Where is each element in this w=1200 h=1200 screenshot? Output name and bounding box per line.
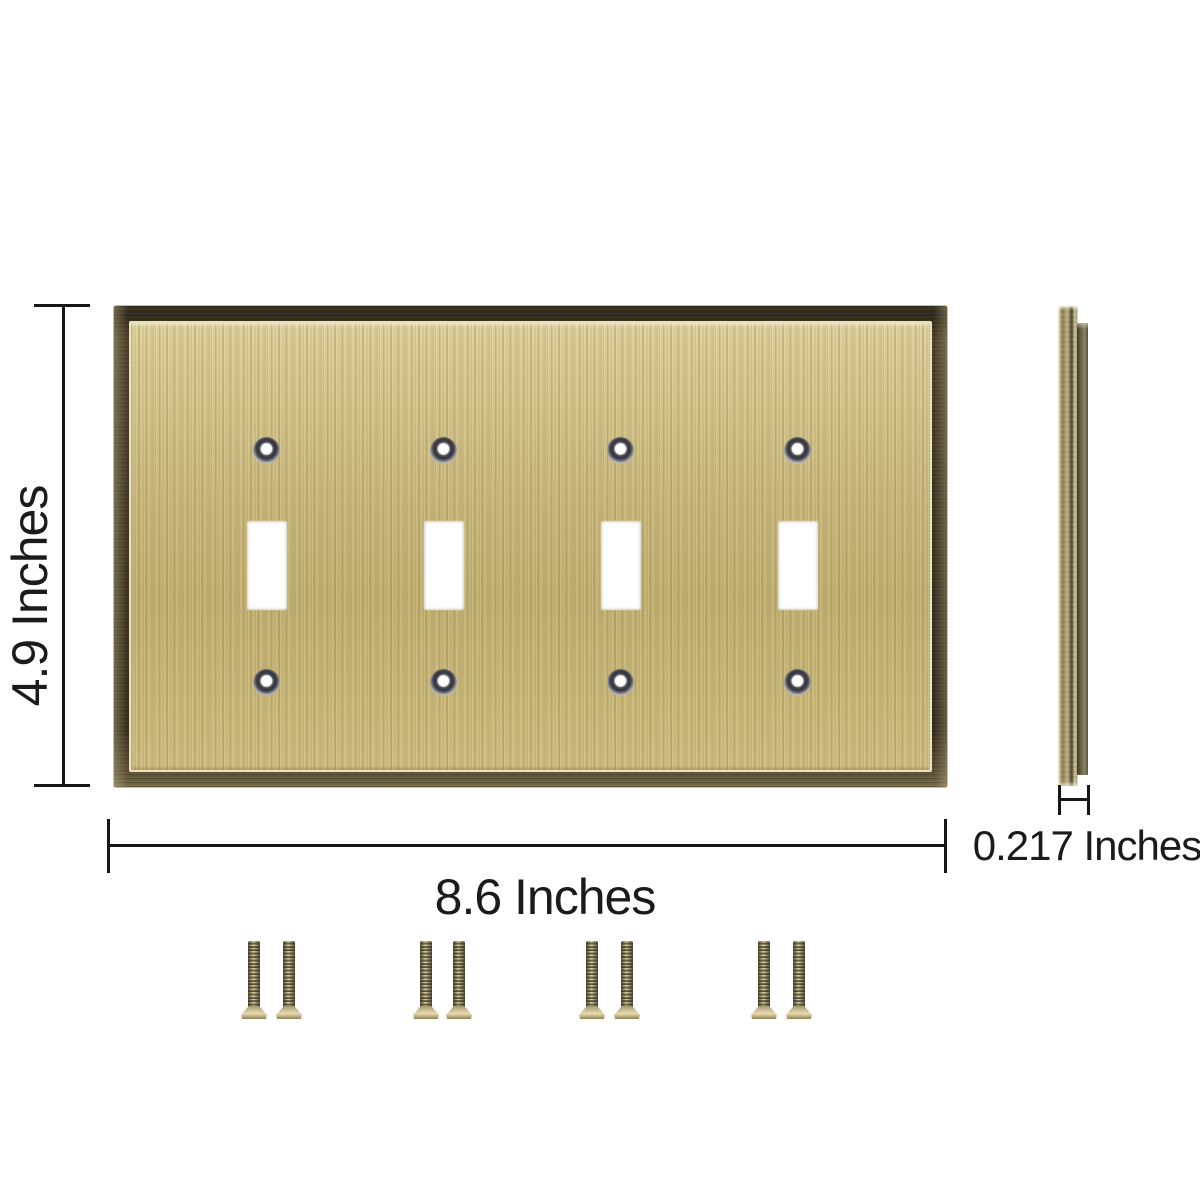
mounting-screw-icon xyxy=(786,941,812,1019)
screw-hole-icon xyxy=(784,437,811,464)
gang-column-3 xyxy=(601,323,641,806)
height-dim-bottom-tick xyxy=(34,784,90,787)
mounting-screw-icon xyxy=(413,941,439,1019)
gang-column-1 xyxy=(247,323,287,806)
mounting-screw-icon xyxy=(614,941,640,1019)
mounting-screw-icon xyxy=(446,941,472,1019)
screw-shaft xyxy=(453,941,465,1008)
mounting-screw-icon xyxy=(276,941,302,1019)
mounting-screws-row xyxy=(0,941,1200,1021)
screw-shaft xyxy=(283,941,295,1008)
screw-head xyxy=(614,1006,640,1019)
dimension-width-label: 8.6 Inches xyxy=(395,868,695,926)
screw-hole-icon xyxy=(253,669,280,696)
width-dim-line xyxy=(108,844,946,847)
depth-dim-line xyxy=(1058,798,1090,801)
product-diagram-canvas: 4.9 Inches 8.6 Inches 0.217 Inches xyxy=(0,0,1200,1200)
side-view-front-edge xyxy=(1058,306,1078,786)
height-dim-line xyxy=(62,306,65,786)
mounting-screw-icon xyxy=(751,941,777,1019)
depth-dim-right-tick xyxy=(1087,785,1090,815)
screw-head xyxy=(241,1006,267,1019)
screw-hole-icon xyxy=(430,669,457,696)
screw-hole-icon xyxy=(607,437,634,464)
screw-shaft xyxy=(621,941,633,1008)
gang-column-4 xyxy=(778,323,818,806)
screw-shaft xyxy=(586,941,598,1008)
screw-head xyxy=(579,1006,605,1019)
dimension-depth-label: 0.217 Inches xyxy=(962,822,1200,870)
screw-head xyxy=(751,1006,777,1019)
toggle-switch-cutout xyxy=(424,521,464,610)
screw-hole-icon xyxy=(607,669,634,696)
screw-hole-icon xyxy=(784,669,811,696)
width-dim-right-tick xyxy=(944,819,947,873)
screw-head xyxy=(786,1006,812,1019)
screw-head xyxy=(413,1006,439,1019)
dimension-height-label: 4.9 Inches xyxy=(2,471,58,721)
screw-hole-icon xyxy=(253,437,280,464)
toggle-switch-cutout xyxy=(601,521,641,610)
screw-shaft xyxy=(758,941,770,1008)
gang-column-2 xyxy=(424,323,464,806)
screw-hole-icon xyxy=(430,437,457,464)
toggle-switch-cutout xyxy=(778,521,818,610)
screw-shaft xyxy=(793,941,805,1008)
screw-shaft xyxy=(248,941,260,1008)
side-view-back-edge xyxy=(1077,323,1088,775)
screw-shaft xyxy=(420,941,432,1008)
wall-plate-side-view xyxy=(1056,306,1090,786)
screw-head xyxy=(276,1006,302,1019)
mounting-screw-icon xyxy=(241,941,267,1019)
wall-plate-front-view xyxy=(113,305,948,788)
plate-brushed-brass-face xyxy=(129,321,932,772)
mounting-screw-icon xyxy=(579,941,605,1019)
screw-head xyxy=(446,1006,472,1019)
toggle-switch-cutout xyxy=(247,521,287,610)
